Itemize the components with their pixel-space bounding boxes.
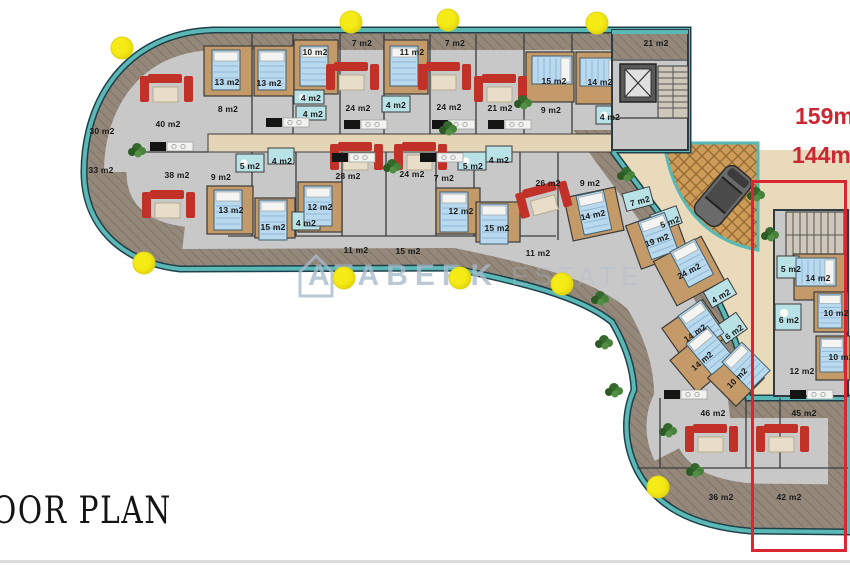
room-area-label: 24 m2 <box>399 169 424 179</box>
room-area-label: 4 m2 <box>386 100 406 110</box>
room-area-label: 11 m2 <box>344 245 369 255</box>
room-area-label: 9 m2 <box>211 172 231 182</box>
unit-area-label-2: 144m <box>792 142 850 169</box>
yellow-marker-dot[interactable] <box>449 267 472 290</box>
room-area-label: 12 m2 <box>307 202 332 212</box>
room-area-label: 36 m2 <box>708 492 733 502</box>
room-area-label: 9 m2 <box>580 178 600 188</box>
stairs-icon <box>658 66 688 118</box>
house-logo-icon <box>294 250 338 298</box>
room-area-label: 12 m2 <box>789 366 814 376</box>
room-area-label: 5 m2 <box>463 161 483 171</box>
yellow-marker-dot[interactable] <box>340 11 363 34</box>
room-area-label: 13 m2 <box>214 77 239 87</box>
unit-area-label-1: 159m <box>795 103 850 130</box>
room-area-label: 12 m2 <box>448 206 473 216</box>
room-area-label: 24 m2 <box>436 102 461 112</box>
room-area-label: 11 m2 <box>400 47 425 57</box>
room-area-label: 5 m2 <box>240 161 260 171</box>
yellow-marker-dot[interactable] <box>586 12 609 35</box>
room-area-label: 9 m2 <box>541 105 561 115</box>
room-area-label: 4 m2 <box>303 109 323 119</box>
floor-plan-title: OOR PLAN <box>0 489 172 532</box>
yellow-marker-dot[interactable] <box>133 252 156 275</box>
room-area-label: 13 m2 <box>256 78 281 88</box>
room-area-label: 10 m2 <box>828 352 850 362</box>
room-area-label: 21 m2 <box>643 38 668 48</box>
room-area-label: 40 m2 <box>155 119 180 129</box>
room-area-label: 7 m2 <box>445 38 465 48</box>
room-area-label: 15 m2 <box>541 76 566 86</box>
room-area-label: 15 m2 <box>484 223 509 233</box>
room-area-label: 14 m2 <box>587 77 612 87</box>
room-area-label: 4 m2 <box>301 93 321 103</box>
room-area-label: 14 m2 <box>805 273 830 283</box>
watermark-suffix: ESTATE <box>511 261 644 292</box>
room-area-label: 42 m2 <box>776 492 801 502</box>
bottom-divider <box>0 560 850 563</box>
room-area-label: 7 m2 <box>352 38 372 48</box>
room-area-label: 24 m2 <box>345 103 370 113</box>
floor-plan-page: { "title": { "floor_plan": "OOR PLAN" },… <box>0 0 850 566</box>
yellow-marker-dot[interactable] <box>551 273 574 296</box>
room-area-label: 15 m2 <box>260 222 285 232</box>
room-area-label: 30 m2 <box>89 126 114 136</box>
room-area-label: 5 m2 <box>781 264 801 274</box>
room-area-label: 15 m2 <box>395 246 420 256</box>
room-area-label: 4 m2 <box>272 156 292 166</box>
room-area-label: 7 m2 <box>434 173 454 183</box>
room-area-label: 4 m2 <box>600 112 620 122</box>
yellow-marker-dot[interactable] <box>437 9 460 32</box>
room-area-label: 6 m2 <box>779 315 799 325</box>
room-area-label: 26 m2 <box>535 178 560 188</box>
room-area-label: 46 m2 <box>700 408 725 418</box>
yellow-marker-dot[interactable] <box>333 267 356 290</box>
room-area-label: 28 m2 <box>335 171 360 181</box>
room-area-label: 33 m2 <box>88 165 113 175</box>
room-area-label: 10 m2 <box>302 47 327 57</box>
room-area-label: 4 m2 <box>489 155 509 165</box>
room-area-label: 45 m2 <box>791 408 816 418</box>
elevator-icon <box>620 64 656 102</box>
room-area-label: 11 m2 <box>526 248 551 258</box>
room-area-label: 38 m2 <box>164 170 189 180</box>
room-area-label: 4 m2 <box>296 218 316 228</box>
stair-elevator-block <box>612 30 688 150</box>
yellow-marker-dot[interactable] <box>647 476 670 499</box>
room-area-label: 8 m2 <box>218 104 238 114</box>
room-area-label: 13 m2 <box>218 205 243 215</box>
yellow-marker-dot[interactable] <box>111 37 134 60</box>
room-area-label: 21 m2 <box>487 103 512 113</box>
room-area-label: 10 m2 <box>823 308 848 318</box>
